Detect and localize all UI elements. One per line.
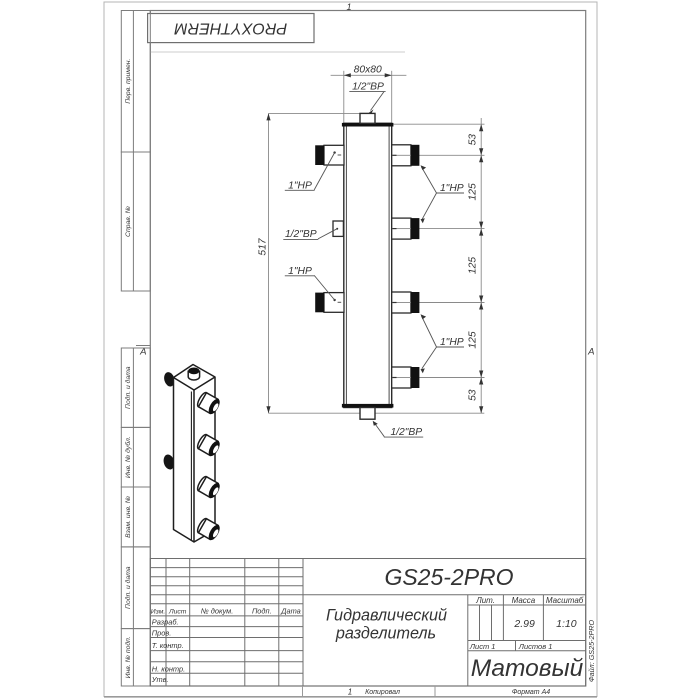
svg-text:1/2"ВР: 1/2"ВР xyxy=(390,427,422,438)
svg-text:Утв.: Утв. xyxy=(151,675,169,684)
svg-text:Лист: Лист xyxy=(168,609,187,616)
svg-text:1: 1 xyxy=(348,688,352,697)
svg-text:1"НР: 1"НР xyxy=(288,266,312,277)
svg-text:Взам. инв. №: Взам. инв. № xyxy=(125,496,132,538)
svg-text:PROXYTHERM: PROXYTHERM xyxy=(174,19,288,36)
svg-text:GS25-2PRO: GS25-2PRO xyxy=(384,564,513,590)
svg-text:1/2"ВР: 1/2"ВР xyxy=(285,229,317,240)
svg-text:53: 53 xyxy=(468,389,479,401)
svg-text:Формат А4: Формат А4 xyxy=(512,689,550,696)
svg-text:Масса: Масса xyxy=(512,596,536,605)
svg-text:80x80: 80x80 xyxy=(354,65,382,76)
svg-text:1"НР: 1"НР xyxy=(440,337,464,348)
svg-text:Подп. и дата: Подп. и дата xyxy=(124,366,132,409)
svg-text:1/2"ВР: 1/2"ВР xyxy=(352,82,384,93)
svg-text:Т. контр.: Т. контр. xyxy=(152,641,184,650)
svg-text:Перв. примен.: Перв. примен. xyxy=(125,59,132,104)
svg-text:Лит.: Лит. xyxy=(475,596,495,605)
svg-text:Копировал: Копировал xyxy=(365,689,400,696)
svg-text:Инв. № дубл.: Инв. № дубл. xyxy=(124,436,132,478)
svg-text:125: 125 xyxy=(468,257,479,274)
svg-text:125: 125 xyxy=(468,183,479,200)
svg-text:Подп.: Подп. xyxy=(252,607,272,616)
svg-text:Н. контр.: Н. контр. xyxy=(152,664,185,673)
svg-text:№ докум.: № докум. xyxy=(201,607,234,616)
svg-text:Масштаб: Масштаб xyxy=(546,596,584,605)
svg-text:1: 1 xyxy=(346,2,351,12)
svg-text:Листов 1: Листов 1 xyxy=(518,642,553,651)
svg-text:Справ. №: Справ. № xyxy=(125,206,132,237)
svg-text:Лист 1: Лист 1 xyxy=(469,642,496,651)
svg-text:А: А xyxy=(587,347,594,358)
svg-text:1"НР: 1"НР xyxy=(288,180,312,191)
svg-text:Файл: GS25-2PRO: Файл: GS25-2PRO xyxy=(587,620,596,683)
svg-text:Разраб.: Разраб. xyxy=(152,618,179,627)
svg-text:Подп. и дата: Подп. и дата xyxy=(124,566,132,609)
svg-text:Дата: Дата xyxy=(280,607,301,616)
svg-text:Инв. № подп.: Инв. № подп. xyxy=(124,636,132,678)
svg-text:125: 125 xyxy=(468,331,479,348)
svg-text:1"НР: 1"НР xyxy=(440,183,464,194)
svg-text:Гидравлический: Гидравлический xyxy=(326,606,447,624)
svg-text:Матовый: Матовый xyxy=(471,655,584,682)
svg-text:Изм.: Изм. xyxy=(151,609,166,616)
svg-text:Пров.: Пров. xyxy=(152,629,172,638)
svg-text:2.99: 2.99 xyxy=(513,618,535,630)
svg-text:53: 53 xyxy=(468,134,479,146)
svg-text:517: 517 xyxy=(257,237,268,255)
svg-text:разделитель: разделитель xyxy=(335,625,436,643)
svg-text:1:10: 1:10 xyxy=(556,618,577,630)
